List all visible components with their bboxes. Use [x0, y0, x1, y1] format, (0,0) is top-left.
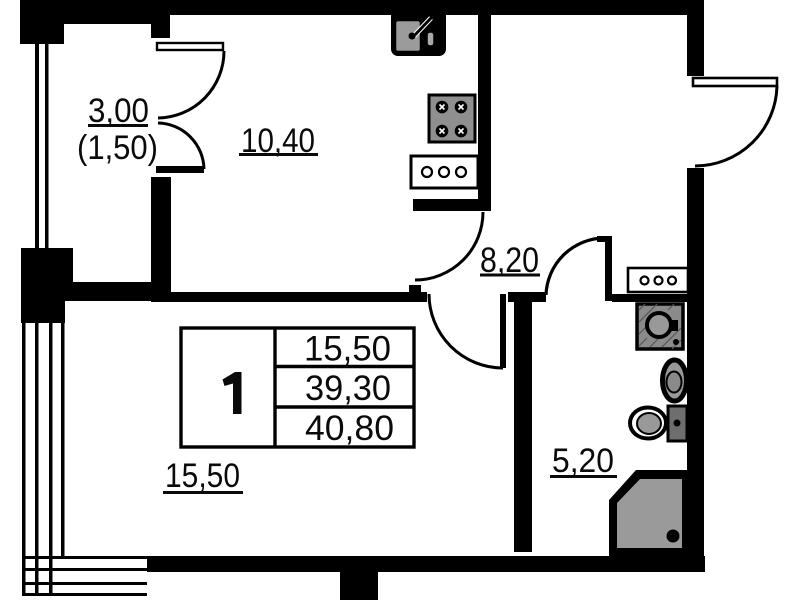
svg-text:39,30: 39,30: [305, 369, 391, 408]
svg-text:15,50: 15,50: [304, 330, 391, 369]
svg-text:(1,50): (1,50): [77, 129, 158, 167]
svg-text:15,50: 15,50: [165, 457, 240, 495]
svg-text:5,20: 5,20: [552, 442, 614, 480]
svg-text:40,80: 40,80: [305, 409, 394, 448]
